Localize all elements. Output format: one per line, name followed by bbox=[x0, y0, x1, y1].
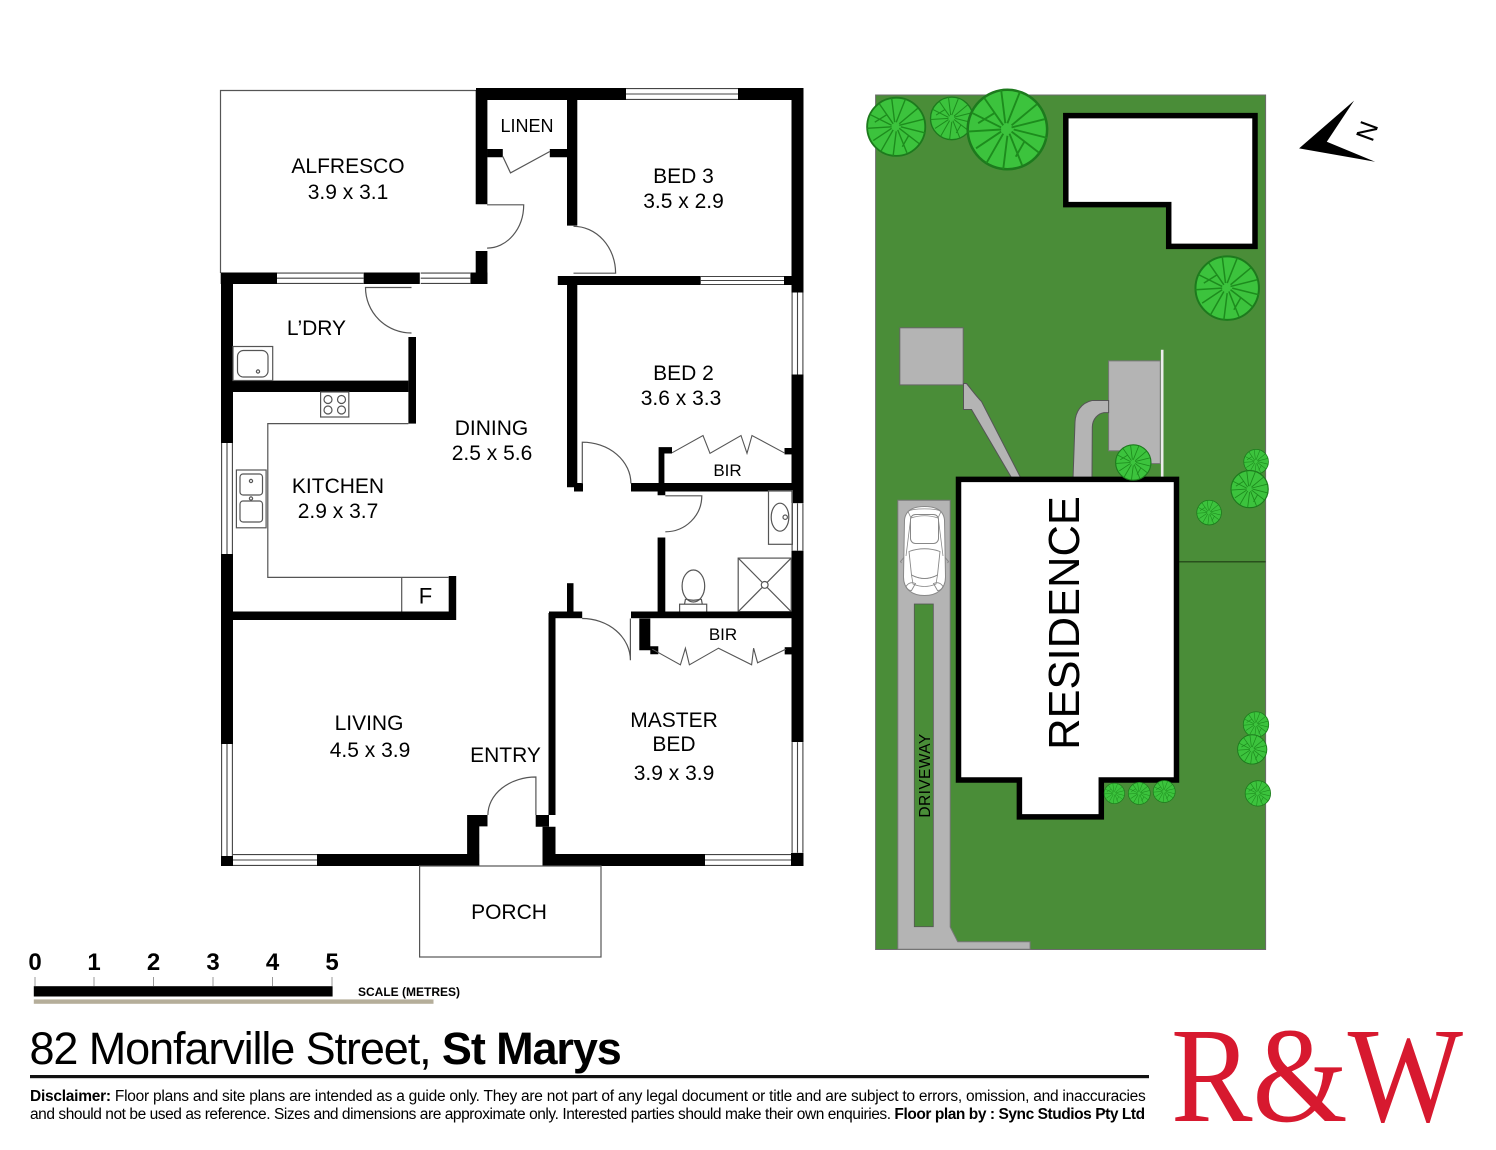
svg-text:3.9 x 3.1: 3.9 x 3.1 bbox=[308, 181, 389, 204]
svg-text:BIR: BIR bbox=[713, 461, 741, 480]
svg-text:KITCHEN: KITCHEN bbox=[292, 475, 384, 498]
svg-text:BIR: BIR bbox=[709, 625, 737, 644]
svg-text:BED 3: BED 3 bbox=[653, 165, 714, 188]
svg-text:3.6 x 3.3: 3.6 x 3.3 bbox=[641, 387, 722, 410]
svg-text:82 Monfarville Street, St Mary: 82 Monfarville Street, St Marys bbox=[30, 1023, 621, 1074]
svg-text:4.5 x 3.9: 4.5 x 3.9 bbox=[330, 739, 411, 762]
svg-text:L’DRY: L’DRY bbox=[287, 317, 346, 340]
svg-text:LINEN: LINEN bbox=[500, 116, 553, 136]
svg-text:ALFRESCO: ALFRESCO bbox=[291, 155, 404, 178]
svg-text:3.9 x 3.9: 3.9 x 3.9 bbox=[634, 762, 715, 785]
svg-text:LIVING: LIVING bbox=[335, 712, 404, 735]
svg-text:0: 0 bbox=[28, 949, 41, 976]
svg-text:N: N bbox=[1350, 117, 1385, 145]
svg-text:MASTER: MASTER bbox=[630, 709, 718, 732]
svg-text:and should not be used as refe: and should not be used as reference. Siz… bbox=[30, 1106, 1145, 1123]
svg-text:3: 3 bbox=[206, 949, 219, 976]
svg-text:1: 1 bbox=[87, 949, 100, 976]
svg-text:SCALE (METRES): SCALE (METRES) bbox=[358, 985, 460, 999]
svg-text:F: F bbox=[419, 584, 432, 609]
svg-text:DINING: DINING bbox=[455, 417, 529, 440]
svg-text:DRIVEWAY: DRIVEWAY bbox=[917, 733, 934, 817]
svg-text:2.5 x 5.6: 2.5 x 5.6 bbox=[452, 442, 533, 465]
svg-text:ENTRY: ENTRY bbox=[470, 744, 541, 767]
svg-text:Disclaimer: Floor plans and si: Disclaimer: Floor plans and site plans a… bbox=[30, 1088, 1146, 1105]
svg-text:3.5 x 2.9: 3.5 x 2.9 bbox=[643, 190, 724, 213]
svg-text:BED: BED bbox=[652, 733, 695, 756]
svg-text:2.9 x 3.7: 2.9 x 3.7 bbox=[298, 500, 379, 523]
svg-text:BED 2: BED 2 bbox=[653, 362, 714, 385]
svg-text:4: 4 bbox=[266, 949, 280, 976]
svg-text:2: 2 bbox=[147, 949, 160, 976]
svg-text:PORCH: PORCH bbox=[471, 901, 547, 924]
svg-text:R&W: R&W bbox=[1171, 1001, 1464, 1150]
svg-text:RESIDENCE: RESIDENCE bbox=[1041, 496, 1089, 750]
svg-text:5: 5 bbox=[325, 949, 338, 976]
